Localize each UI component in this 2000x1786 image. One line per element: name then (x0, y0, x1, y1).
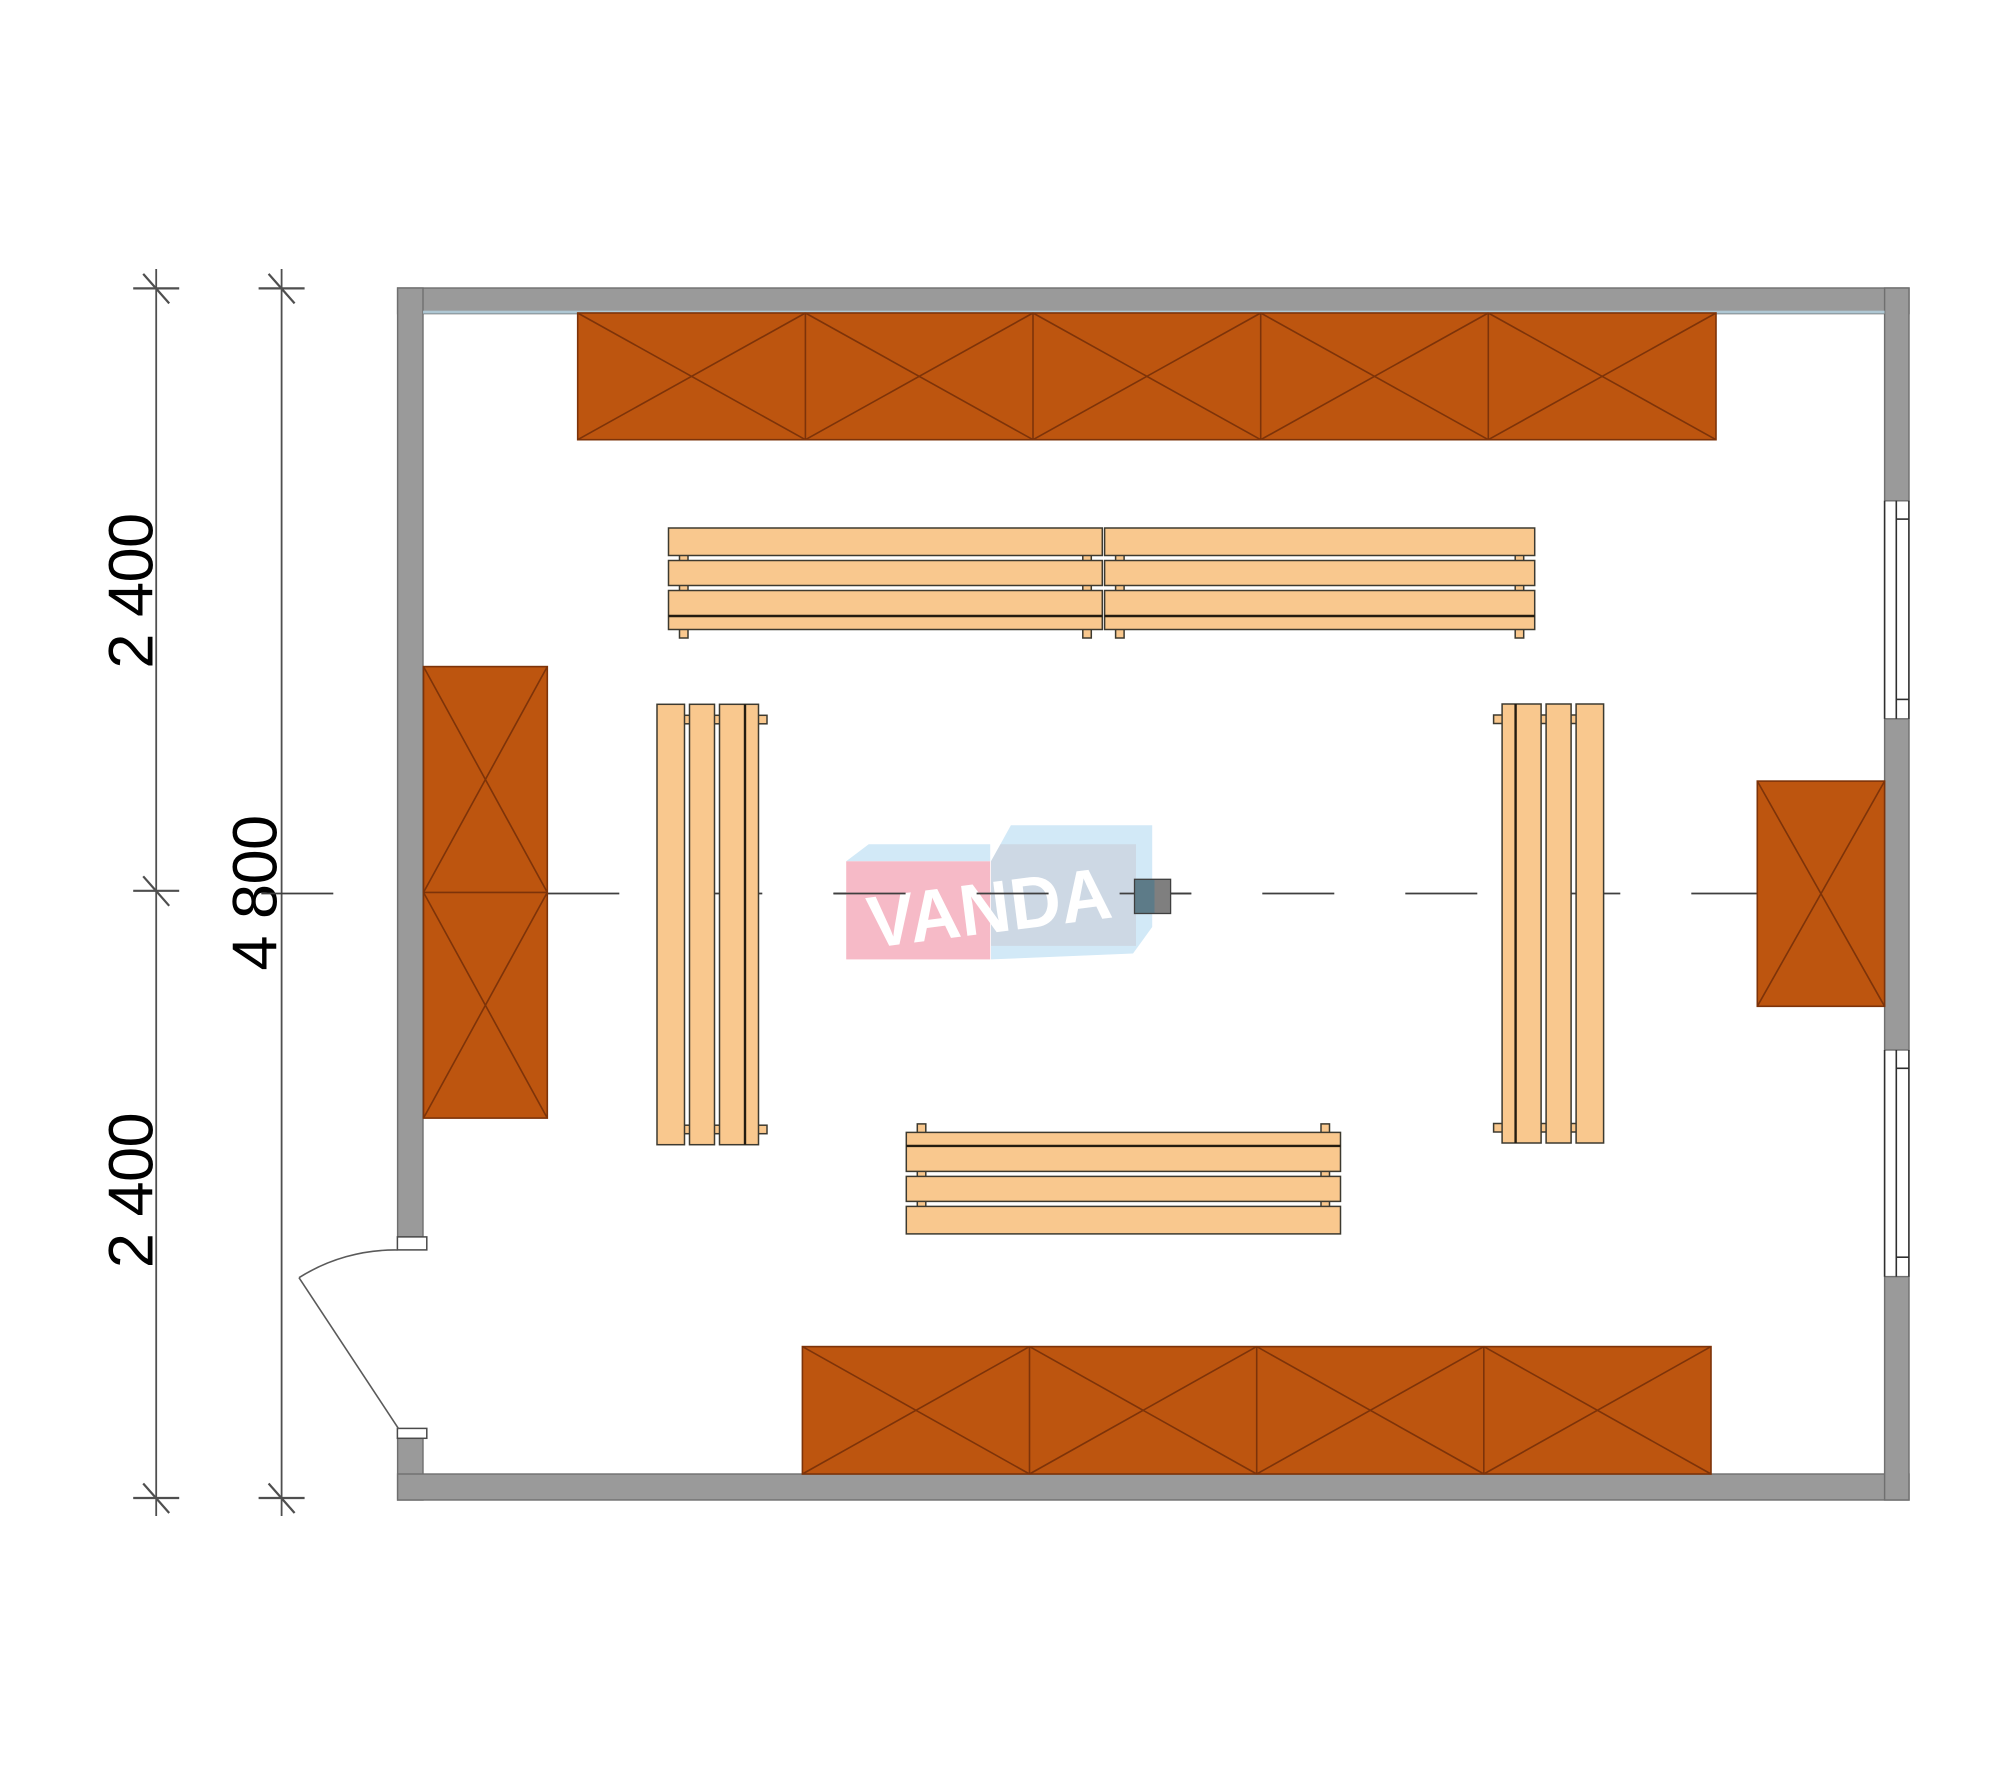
svg-text:2 400: 2 400 (97, 513, 167, 668)
svg-text:2 400: 2 400 (97, 1113, 167, 1268)
